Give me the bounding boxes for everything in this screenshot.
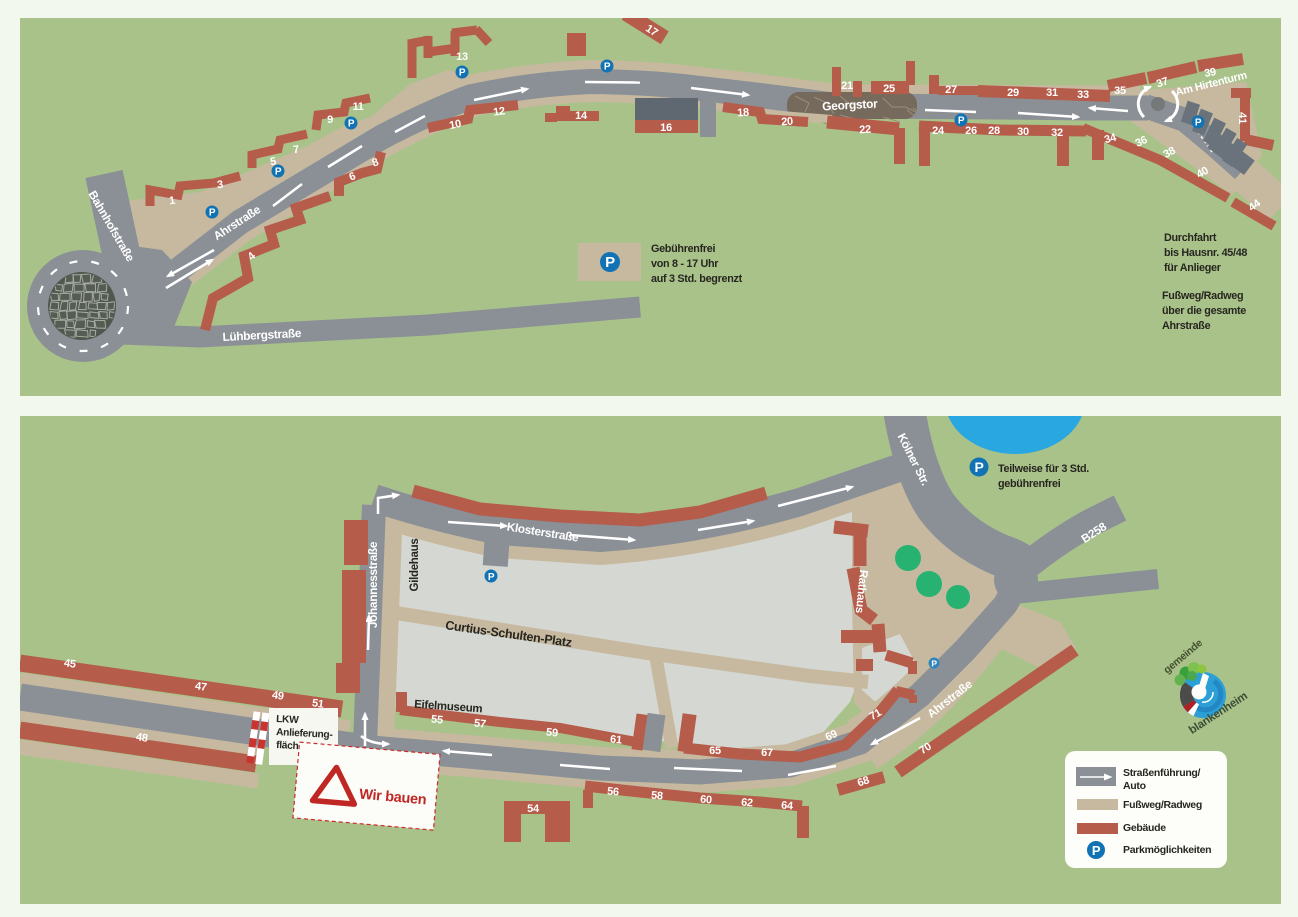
svg-text:P: P (1092, 843, 1101, 858)
svg-text:auf 3 Std. begrenzt: auf 3 Std. begrenzt (651, 273, 743, 285)
svg-text:54: 54 (527, 803, 540, 815)
svg-text:Fußweg/Radweg: Fußweg/Radweg (1123, 799, 1202, 811)
svg-text:65: 65 (709, 745, 721, 757)
svg-text:P: P (209, 208, 216, 219)
svg-text:P: P (605, 254, 615, 271)
svg-text:Georgstor: Georgstor (822, 97, 879, 114)
svg-text:bis Hausnr. 45/48: bis Hausnr. 45/48 (1164, 247, 1247, 259)
svg-text:Ahrstraße: Ahrstraße (1162, 320, 1211, 332)
svg-text:59: 59 (545, 726, 558, 739)
svg-text:57: 57 (473, 717, 486, 730)
svg-text:56: 56 (607, 786, 620, 799)
svg-text:41: 41 (1236, 112, 1248, 124)
svg-text:P: P (488, 572, 495, 583)
svg-text:von 8 - 17 Uhr: von 8 - 17 Uhr (651, 258, 719, 270)
svg-text:Teilweise für 3 Std.: Teilweise für 3 Std. (998, 463, 1089, 475)
svg-text:28: 28 (988, 125, 1000, 137)
svg-text:55: 55 (430, 713, 443, 726)
svg-text:Johannesstraße: Johannesstraße (366, 541, 380, 628)
svg-text:Parkmöglichkeiten: Parkmöglichkeiten (1123, 844, 1211, 856)
svg-text:49: 49 (271, 689, 284, 703)
svg-text:11: 11 (352, 101, 363, 113)
svg-text:61: 61 (609, 733, 622, 746)
svg-text:45: 45 (63, 657, 76, 671)
svg-text:Gebührenfrei: Gebührenfrei (651, 243, 715, 255)
svg-text:25: 25 (883, 83, 895, 95)
svg-text:30: 30 (1017, 126, 1029, 138)
svg-text:P: P (275, 167, 282, 178)
svg-text:über die gesamte: über die gesamte (1162, 305, 1246, 317)
svg-text:24: 24 (932, 125, 945, 137)
svg-text:58: 58 (651, 790, 664, 803)
svg-text:33: 33 (1077, 89, 1089, 101)
svg-text:60: 60 (700, 794, 713, 807)
svg-text:P: P (459, 68, 466, 79)
svg-text:P: P (1195, 118, 1202, 129)
svg-text:16: 16 (660, 122, 672, 134)
svg-text:51: 51 (311, 697, 324, 711)
svg-text:26: 26 (965, 125, 977, 137)
svg-text:LKW: LKW (276, 714, 300, 726)
svg-text:12: 12 (493, 105, 506, 119)
svg-text:67: 67 (761, 747, 773, 759)
svg-text:P: P (348, 119, 355, 130)
svg-text:22: 22 (859, 124, 872, 137)
svg-text:29: 29 (1007, 87, 1019, 99)
svg-text:31: 31 (1046, 87, 1058, 99)
svg-text:13: 13 (456, 51, 468, 63)
svg-text:Auto: Auto (1123, 780, 1146, 792)
svg-text:P: P (931, 659, 937, 669)
svg-text:27: 27 (945, 84, 957, 96)
svg-text:P: P (974, 459, 983, 475)
svg-text:47: 47 (194, 680, 207, 694)
svg-text:Durchfahrt: Durchfahrt (1164, 232, 1217, 244)
svg-text:Fußweg/Radweg: Fußweg/Radweg (1162, 290, 1243, 302)
svg-text:35: 35 (1114, 85, 1126, 97)
svg-text:21: 21 (841, 80, 853, 92)
svg-text:9: 9 (327, 114, 333, 126)
svg-text:20: 20 (781, 116, 794, 129)
svg-text:48: 48 (135, 731, 148, 745)
svg-text:P: P (958, 116, 965, 127)
svg-text:gebührenfrei: gebührenfrei (998, 478, 1061, 490)
svg-text:39: 39 (1203, 66, 1217, 80)
svg-text:32: 32 (1051, 127, 1063, 139)
svg-text:Straßenführung/: Straßenführung/ (1123, 767, 1201, 779)
svg-text:18: 18 (737, 107, 750, 120)
svg-text:64: 64 (781, 800, 795, 813)
svg-text:P: P (604, 62, 611, 73)
svg-text:für Anlieger: für Anlieger (1164, 262, 1222, 274)
svg-text:14: 14 (575, 110, 588, 122)
svg-text:62: 62 (741, 797, 754, 810)
svg-text:Gebäude: Gebäude (1123, 822, 1166, 834)
svg-text:Gildehaus: Gildehaus (409, 539, 421, 592)
